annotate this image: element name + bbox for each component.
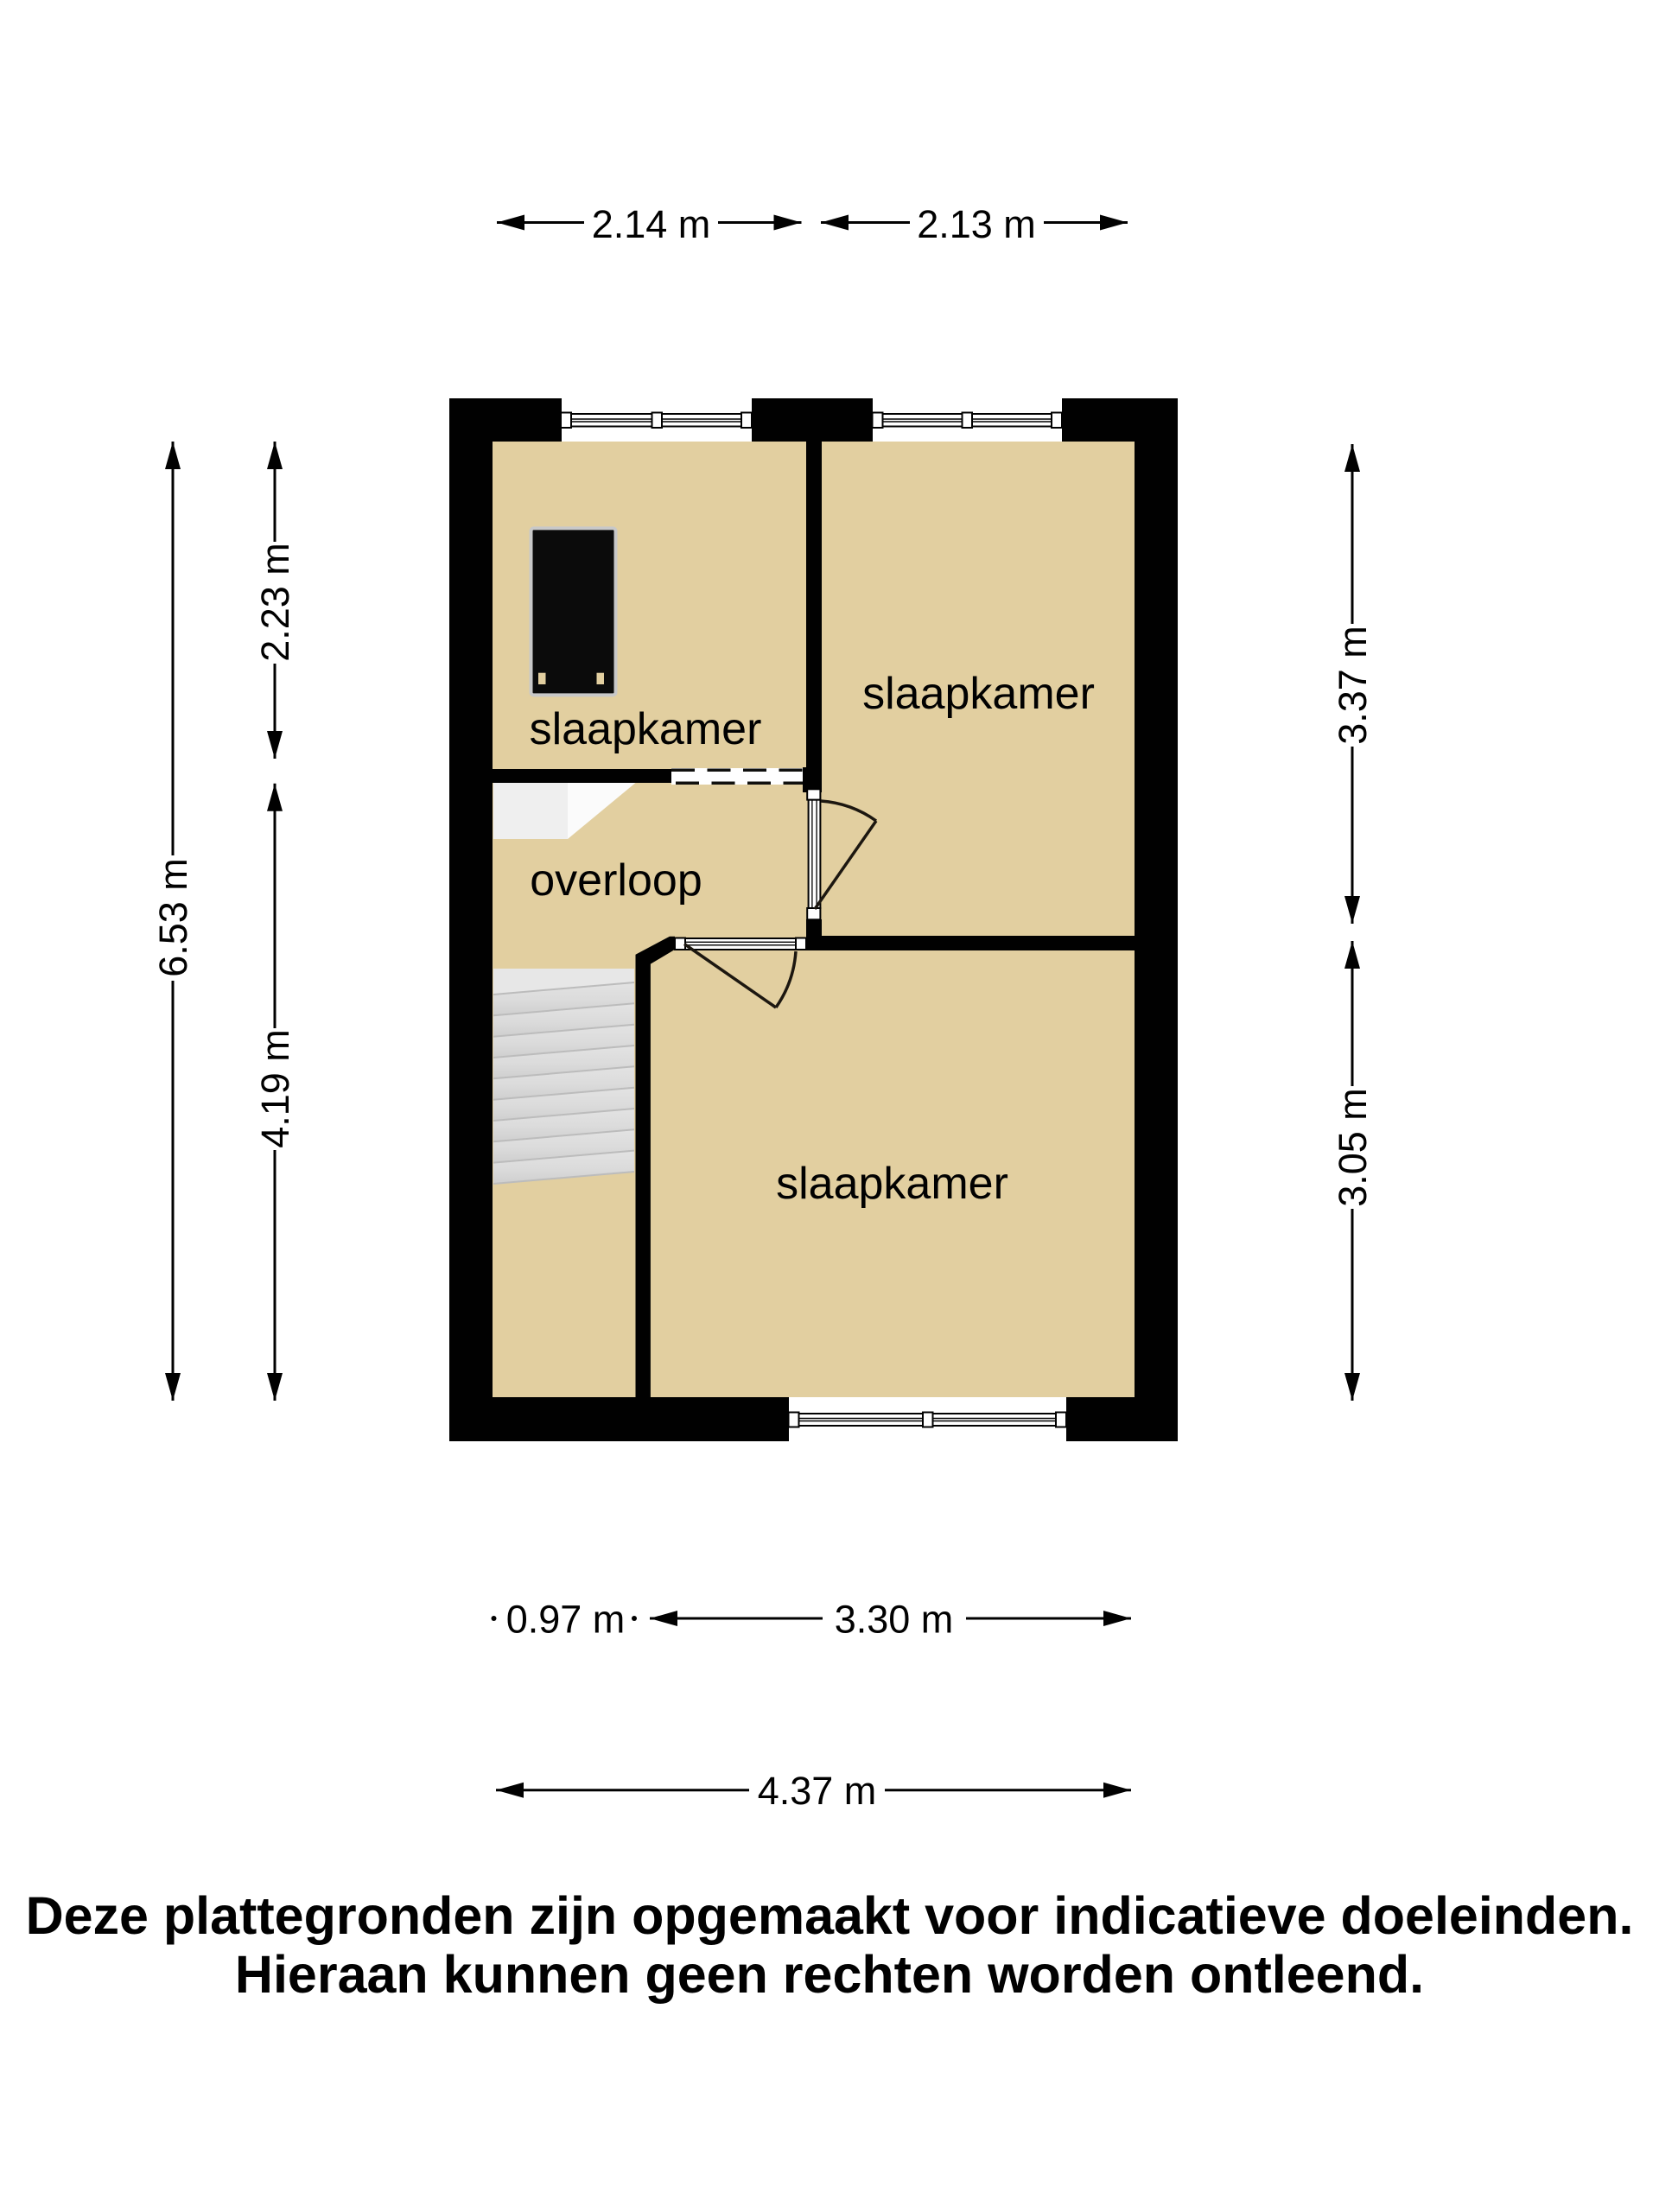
svg-text:6.53 m: 6.53 m: [151, 858, 195, 977]
svg-text:slaapkamer: slaapkamer: [862, 669, 1095, 719]
svg-text:0.97 m: 0.97 m: [506, 1598, 626, 1642]
svg-text:3.37 m: 3.37 m: [1331, 626, 1375, 745]
svg-text:slaapkamer: slaapkamer: [530, 704, 762, 754]
svg-text:4.19 m: 4.19 m: [253, 1029, 297, 1148]
svg-text:2.14 m: 2.14 m: [592, 202, 711, 246]
svg-text:2.23 m: 2.23 m: [253, 543, 297, 662]
svg-text:2.13 m: 2.13 m: [917, 202, 1036, 246]
svg-text:Hieraan kunnen geen rechten wo: Hieraan kunnen geen rechten worden ontle…: [235, 1945, 1424, 2004]
svg-text:3.05 m: 3.05 m: [1331, 1088, 1375, 1207]
svg-text:slaapkamer: slaapkamer: [776, 1159, 1008, 1209]
svg-text:3.30 m: 3.30 m: [835, 1598, 954, 1642]
svg-text:overloop: overloop: [530, 855, 702, 906]
svg-text:Deze plattegronden zijn opgema: Deze plattegronden zijn opgemaakt voor i…: [26, 1886, 1634, 1945]
svg-text:4.37 m: 4.37 m: [758, 1769, 877, 1813]
